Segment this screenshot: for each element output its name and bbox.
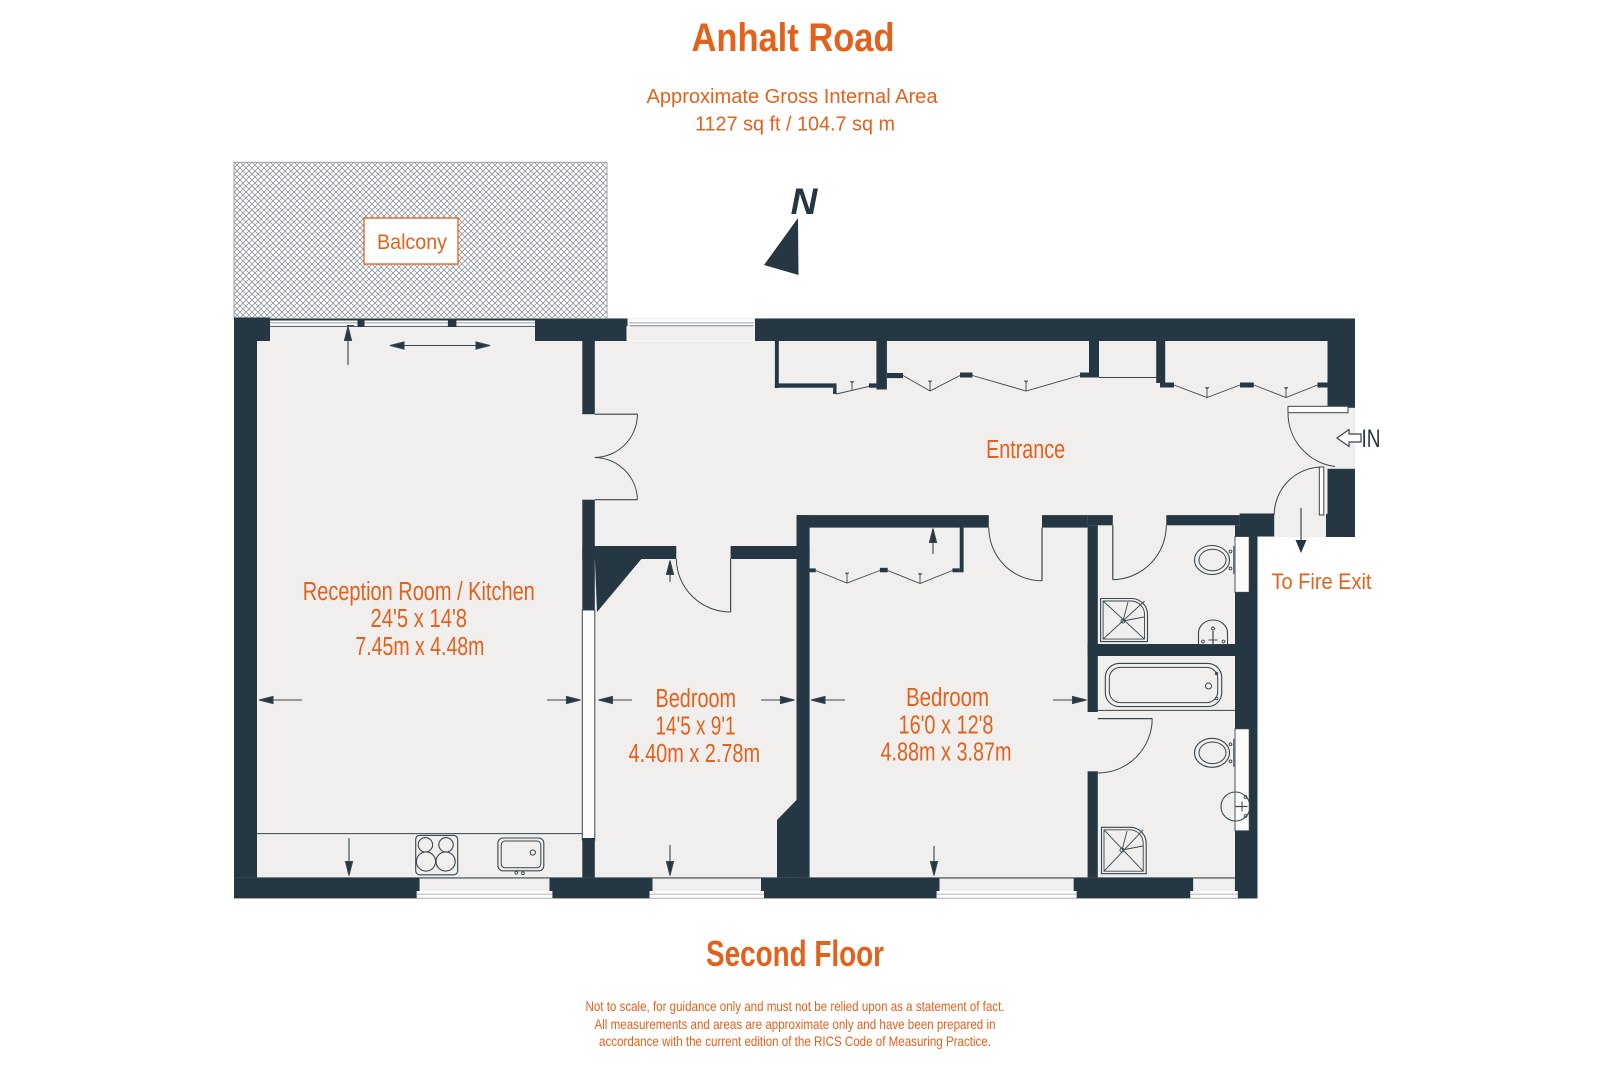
svg-text:Entrance: Entrance [986,436,1065,464]
svg-text:16'0 x 12'8: 16'0 x 12'8 [899,712,994,740]
svg-text:Second Floor: Second Floor [706,933,884,974]
svg-text:All measurements and areas are: All measurements and areas are approxima… [595,1016,996,1032]
svg-text:24'5 x 14'8: 24'5 x 14'8 [371,605,468,633]
svg-text:4.40m x 2.78m: 4.40m x 2.78m [629,740,761,768]
svg-text:Approximate Gross Internal Are: Approximate Gross Internal Area [647,86,939,108]
svg-text:Reception Room / Kitchen: Reception Room / Kitchen [303,578,535,606]
svg-text:Anhalt Road: Anhalt Road [692,16,895,60]
svg-text:Balcony: Balcony [377,231,447,254]
svg-text:Bedroom: Bedroom [656,685,737,713]
svg-text:IN: IN [1362,425,1381,453]
svg-text:accordance with the current ed: accordance with the current edition of t… [599,1033,991,1049]
svg-text:N: N [791,181,819,222]
svg-text:14'5 x 9'1: 14'5 x 9'1 [656,713,736,741]
svg-text:4.88m x 3.87m: 4.88m x 3.87m [881,739,1012,767]
svg-text:Not to scale, for guidance onl: Not to scale, for guidance only and must… [586,998,1005,1014]
svg-text:7.45m x 4.48m: 7.45m x 4.48m [355,633,484,661]
svg-text:Bedroom: Bedroom [906,684,989,712]
svg-text:1127 sq ft / 104.7 sq m: 1127 sq ft / 104.7 sq m [695,114,895,136]
svg-text:To Fire Exit: To Fire Exit [1272,569,1372,594]
